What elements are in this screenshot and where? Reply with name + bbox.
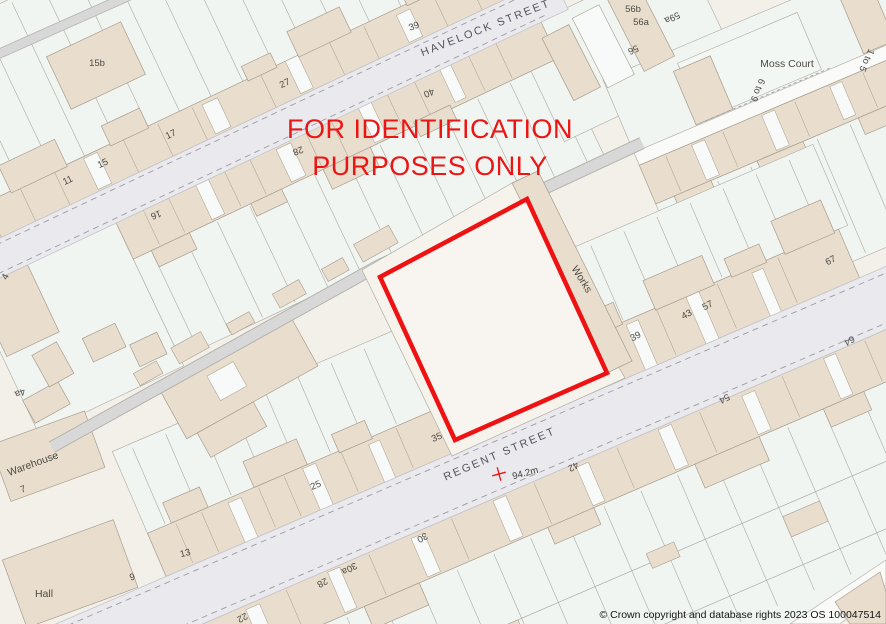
map-label-15b: 15b bbox=[89, 58, 105, 69]
copyright-notice: © Crown copyright and database rights 20… bbox=[599, 609, 881, 621]
os-map-extract: HAVELOCK STREETREGENT STREETMoss CourtWo… bbox=[0, 0, 886, 624]
map-label-hall: Hall bbox=[35, 588, 53, 600]
map-label-56b: 56b bbox=[625, 4, 641, 15]
map-canvas: HAVELOCK STREETREGENT STREETMoss CourtWo… bbox=[0, 0, 886, 624]
map-label-moss-court: Moss Court bbox=[760, 58, 814, 70]
map-label-56a: 56a bbox=[633, 17, 650, 28]
